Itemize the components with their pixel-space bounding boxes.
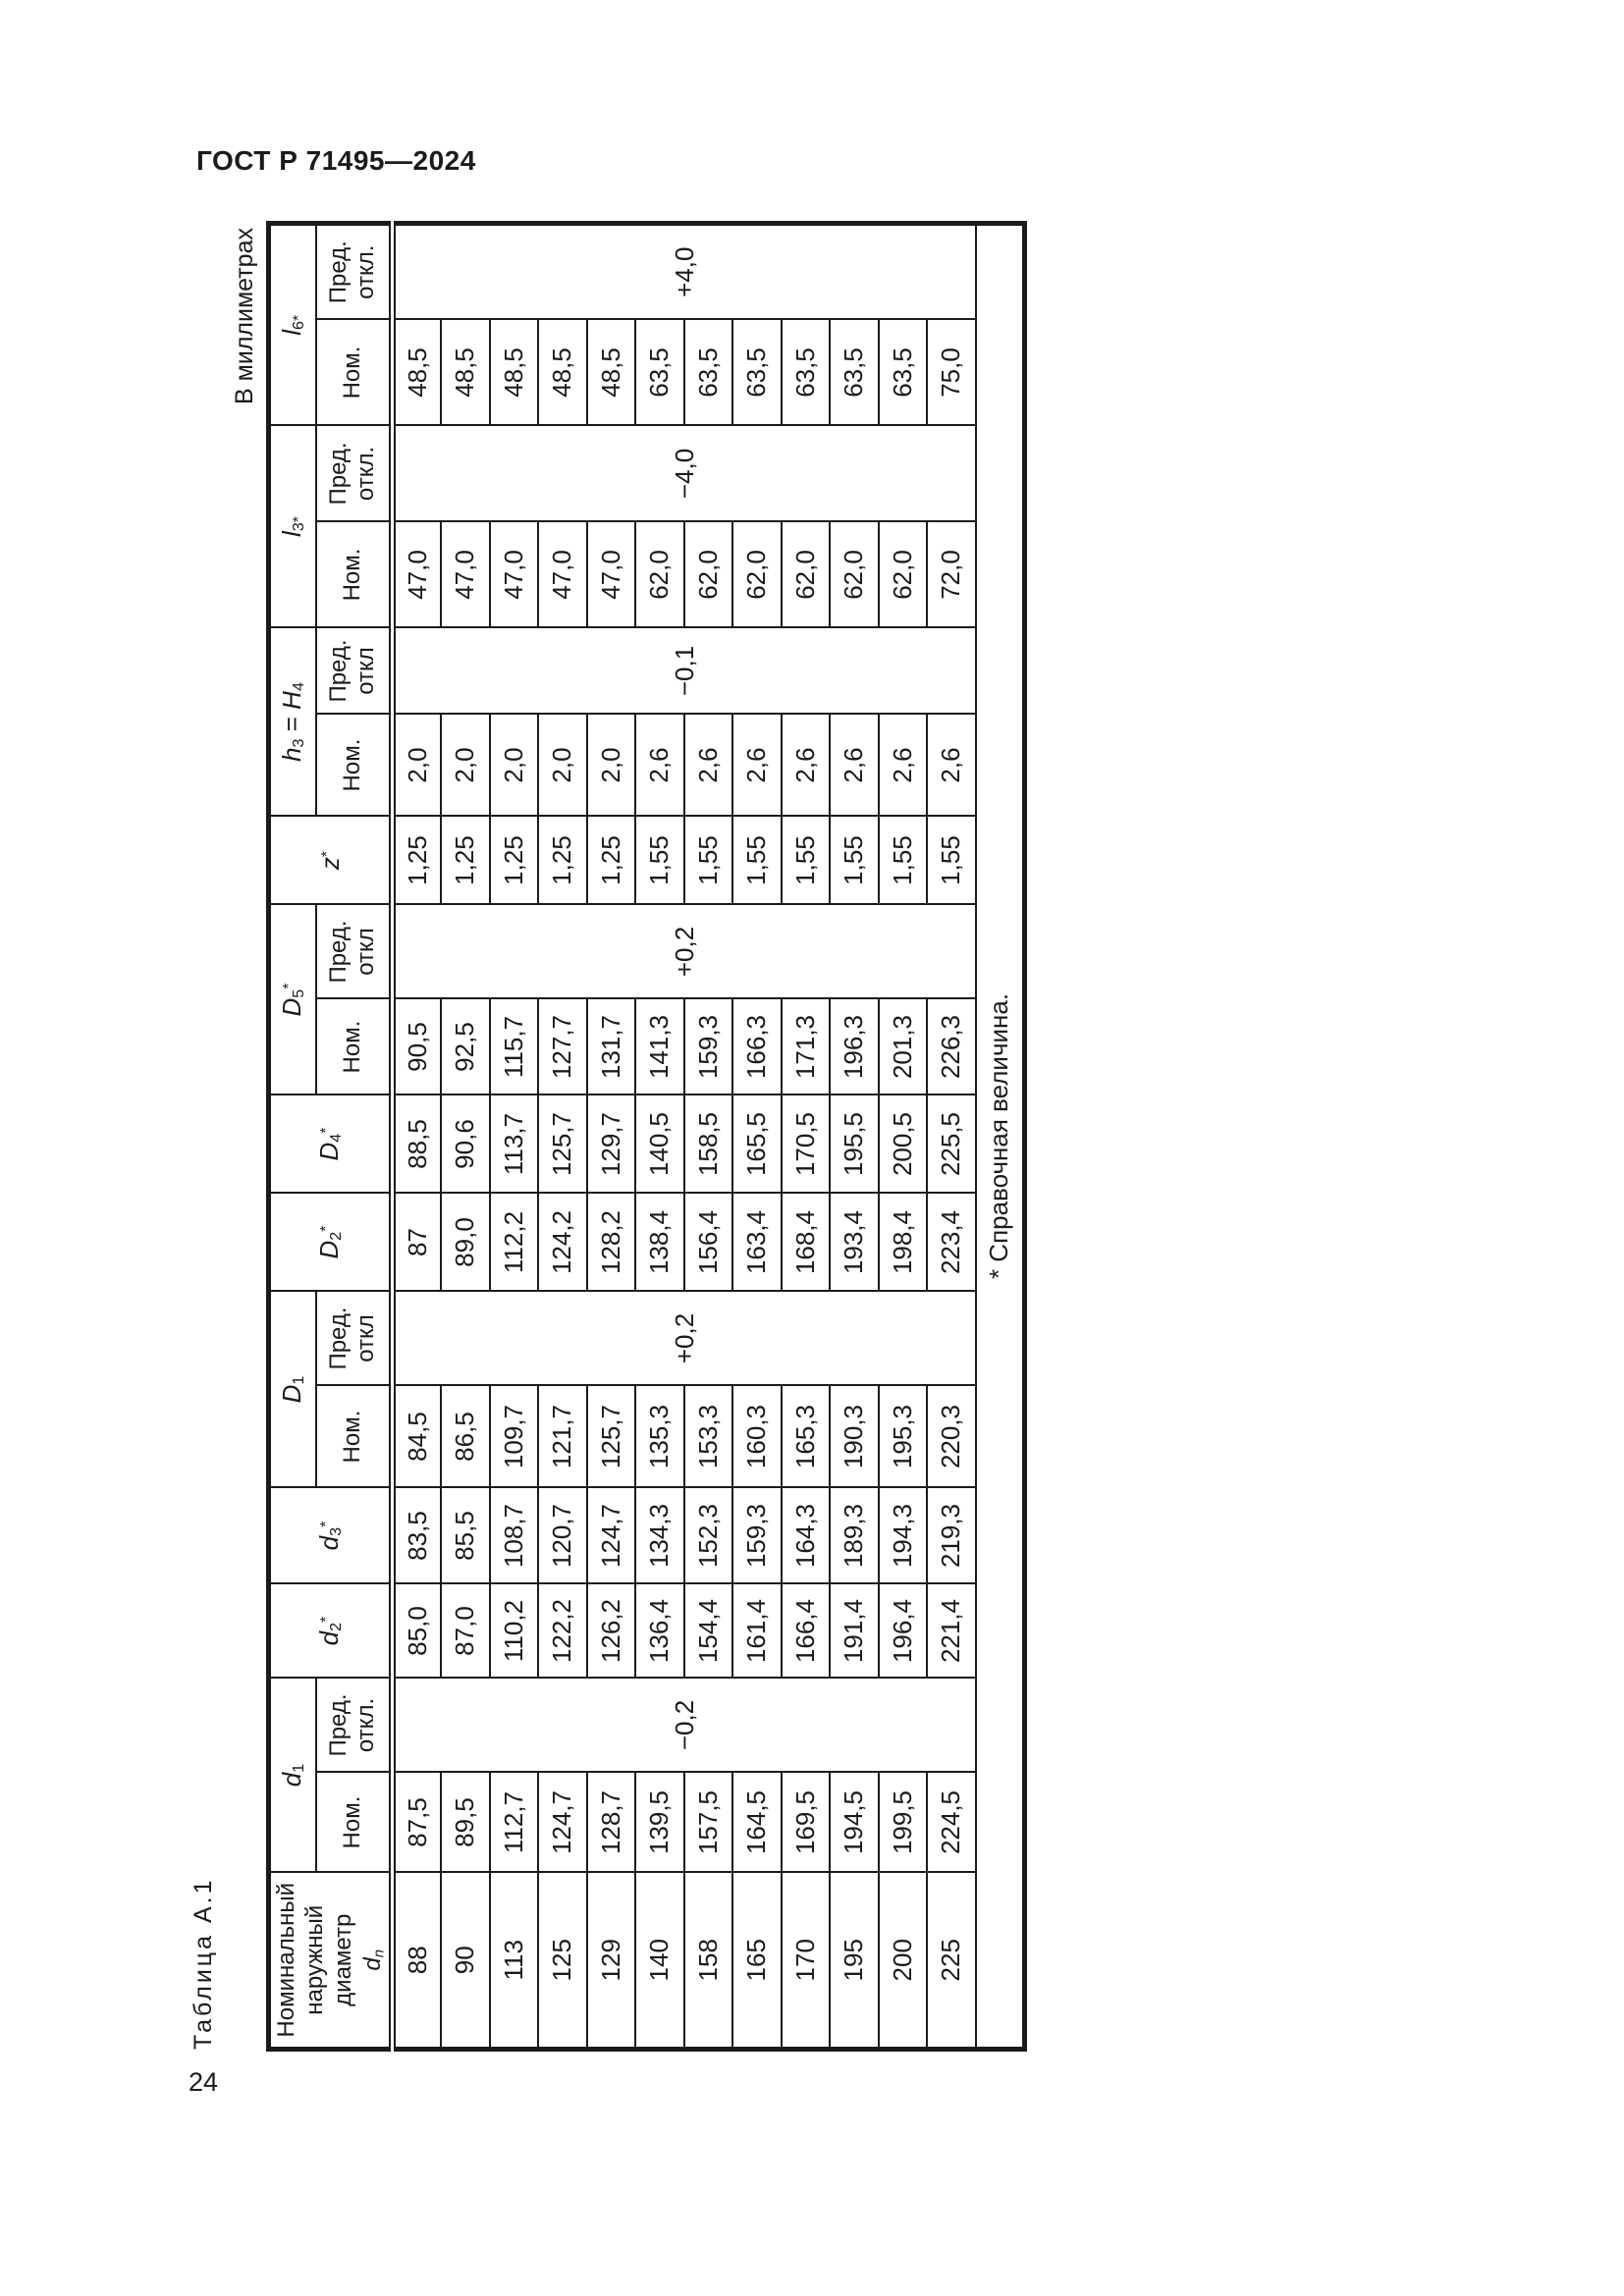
cell-dn: 225 (927, 1873, 976, 2050)
subheader-l3-pred: Пред. откл. (316, 425, 393, 521)
cell-d2: 126,2 (587, 1584, 636, 1679)
footnote-row: * Справочная величина. (976, 223, 1025, 2049)
cell-d2: 161,4 (732, 1584, 782, 1679)
table-body: 8887,5−0,285,083,584,5+0,28788,590,5+0,2… (393, 223, 976, 2049)
cell-d1-nom: 224,5 (927, 1773, 976, 1873)
dimensions-table: Номинальныйнаружныйдиаметрdnd1d2*d3*D1D2… (266, 221, 1027, 2052)
cell-l6-nom: 63,5 (684, 319, 733, 425)
subheader-D5-pred: Пред. откл (316, 905, 393, 999)
cell-D2: 89,0 (441, 1194, 490, 1292)
cell-l6-pred-merged: +4,0 (393, 223, 976, 319)
table-footer: * Справочная величина. (976, 223, 1025, 2049)
subheader-D1-pred: Пред. откл (316, 1292, 393, 1386)
cell-l3-pred-merged: −4,0 (393, 425, 976, 521)
cell-d1-nom: 128,7 (587, 1773, 636, 1873)
column-header-D4: D4* (269, 1095, 393, 1194)
cell-d1-nom: 169,5 (782, 1773, 831, 1873)
cell-dn: 158 (684, 1873, 733, 2050)
cell-dn: 129 (587, 1873, 636, 2050)
cell-h3-nom: 2,6 (830, 715, 879, 817)
cell-l6-nom: 75,0 (927, 319, 976, 425)
cell-l6-nom: 63,5 (782, 319, 831, 425)
cell-d3: 120,7 (538, 1488, 587, 1584)
cell-z: 1,55 (635, 817, 684, 905)
column-header-h3: h3 = H4 (269, 627, 316, 816)
cell-h3-nom: 2,0 (538, 715, 587, 817)
cell-l3-nom: 47,0 (441, 521, 490, 627)
cell-d3: 164,3 (782, 1488, 831, 1584)
page-number: 24 (189, 2067, 218, 2098)
cell-z: 1,55 (927, 817, 976, 905)
cell-l3-nom: 47,0 (538, 521, 587, 627)
cell-D2: 87 (393, 1194, 442, 1292)
cell-h3-nom: 2,6 (684, 715, 733, 817)
cell-z: 1,25 (587, 817, 636, 905)
cell-D1-nom: 84,5 (393, 1386, 442, 1488)
cell-D4: 125,7 (538, 1095, 587, 1194)
cell-D4: 170,5 (782, 1095, 831, 1194)
rotated-table-block: Таблица А.1 В миллиметрах Номинальныйнар… (189, 226, 1023, 2052)
cell-d1-nom: 194,5 (830, 1773, 879, 1873)
cell-z: 1,25 (538, 817, 587, 905)
cell-dn: 195 (830, 1873, 879, 2050)
cell-h3-nom: 2,6 (635, 715, 684, 817)
cell-l6-nom: 48,5 (587, 319, 636, 425)
cell-D5-pred-merged: +0,2 (393, 905, 976, 999)
cell-l3-nom: 47,0 (490, 521, 539, 627)
cell-D2: 168,4 (782, 1194, 831, 1292)
cell-h3-nom: 2,0 (587, 715, 636, 817)
table-header: Номинальныйнаружныйдиаметрdnd1d2*d3*D1D2… (269, 223, 393, 2049)
cell-h3-nom: 2,0 (441, 715, 490, 817)
cell-d1-nom: 89,5 (441, 1773, 490, 1873)
table-row-88: 8887,5−0,285,083,584,5+0,28788,590,5+0,2… (393, 223, 442, 2049)
cell-l6-nom: 63,5 (879, 319, 928, 425)
column-header-D5: D5* (269, 905, 316, 1095)
cell-D5-nom: 201,3 (879, 999, 928, 1095)
table-caption: Таблица А.1 (189, 226, 218, 2050)
table-footnote: * Справочная величина. (976, 223, 1025, 2049)
cell-l3-nom: 62,0 (732, 521, 782, 627)
cell-D5-nom: 127,7 (538, 999, 587, 1095)
cell-D4: 200,5 (879, 1095, 928, 1194)
cell-D2: 163,4 (732, 1194, 782, 1292)
cell-D4: 113,7 (490, 1095, 539, 1194)
cell-D5-nom: 226,3 (927, 999, 976, 1095)
cell-d2: 166,4 (782, 1584, 831, 1679)
cell-D2: 138,4 (635, 1194, 684, 1292)
cell-dn: 88 (393, 1873, 442, 2050)
column-header-D2: D2* (269, 1194, 393, 1292)
cell-z: 1,55 (879, 817, 928, 905)
cell-h3-pred-merged: −0,1 (393, 627, 976, 714)
cell-d1-nom: 157,5 (684, 1773, 733, 1873)
column-header-dn: Номинальныйнаружныйдиаметрdn (269, 1873, 393, 2050)
cell-d3: 189,3 (830, 1488, 879, 1584)
cell-D1-nom: 109,7 (490, 1386, 539, 1488)
document-page: ГОСТ Р 71495—2024 Таблица А.1 В миллимет… (0, 0, 1624, 2296)
cell-D2: 128,2 (587, 1194, 636, 1292)
subheader-l6-pred: Пред. откл. (316, 223, 393, 319)
cell-D4: 195,5 (830, 1095, 879, 1194)
cell-dn: 113 (490, 1873, 539, 2050)
cell-d3: 85,5 (441, 1488, 490, 1584)
cell-d2: 87,0 (441, 1584, 490, 1679)
cell-D1-nom: 121,7 (538, 1386, 587, 1488)
cell-D5-nom: 196,3 (830, 999, 879, 1095)
cell-d3: 194,3 (879, 1488, 928, 1584)
cell-l3-nom: 62,0 (830, 521, 879, 627)
cell-D5-nom: 166,3 (732, 999, 782, 1095)
cell-D1-nom: 135,3 (635, 1386, 684, 1488)
cell-D5-nom: 131,7 (587, 999, 636, 1095)
cell-d1-nom: 112,7 (490, 1773, 539, 1873)
column-header-l6: l6* (269, 223, 316, 425)
cell-D2: 198,4 (879, 1194, 928, 1292)
cell-D2: 156,4 (684, 1194, 733, 1292)
cell-D5-nom: 141,3 (635, 999, 684, 1095)
subheader-D1-nom: Ном. (316, 1386, 393, 1488)
cell-D2: 124,2 (538, 1194, 587, 1292)
cell-d3: 159,3 (732, 1488, 782, 1584)
column-header-D1: D1 (269, 1292, 316, 1488)
cell-h3-nom: 2,0 (393, 715, 442, 817)
cell-D5-nom: 92,5 (441, 999, 490, 1095)
cell-h3-nom: 2,0 (490, 715, 539, 817)
cell-l6-nom: 63,5 (830, 319, 879, 425)
cell-dn: 165 (732, 1873, 782, 2050)
cell-l3-nom: 72,0 (927, 521, 976, 627)
cell-z: 1,25 (393, 817, 442, 905)
subheader-D5-nom: Ном. (316, 999, 393, 1095)
cell-D4: 88,5 (393, 1095, 442, 1194)
cell-D5-nom: 171,3 (782, 999, 831, 1095)
cell-h3-nom: 2,6 (879, 715, 928, 817)
cell-h3-nom: 2,6 (927, 715, 976, 817)
cell-l6-nom: 48,5 (393, 319, 442, 425)
cell-z: 1,55 (684, 817, 733, 905)
cell-l6-nom: 63,5 (732, 319, 782, 425)
cell-d2: 110,2 (490, 1584, 539, 1679)
cell-d2: 85,0 (393, 1584, 442, 1679)
cell-z: 1,55 (732, 817, 782, 905)
cell-D1-nom: 195,3 (879, 1386, 928, 1488)
cell-d1-nom: 164,5 (732, 1773, 782, 1873)
cell-z: 1,25 (441, 817, 490, 905)
cell-d1-nom: 199,5 (879, 1773, 928, 1873)
cell-D4: 158,5 (684, 1095, 733, 1194)
cell-dn: 140 (635, 1873, 684, 2050)
header-row-main: Номинальныйнаружныйдиаметрdnd1d2*d3*D1D2… (269, 223, 316, 2049)
column-header-z: z* (269, 817, 393, 905)
cell-d2: 221,4 (927, 1584, 976, 1679)
cell-D2: 193,4 (830, 1194, 879, 1292)
cell-D4: 225,5 (927, 1095, 976, 1194)
subheader-d1-nom: Ном. (316, 1773, 393, 1873)
cell-h3-nom: 2,6 (732, 715, 782, 817)
subheader-l6-nom: Ном. (316, 319, 393, 425)
cell-d1-nom: 139,5 (635, 1773, 684, 1873)
cell-dn: 200 (879, 1873, 928, 2050)
cell-D1-nom: 190,3 (830, 1386, 879, 1488)
cell-l3-nom: 62,0 (782, 521, 831, 627)
column-header-d2: d2* (269, 1584, 393, 1679)
cell-D4: 129,7 (587, 1095, 636, 1194)
cell-h3-nom: 2,6 (782, 715, 831, 817)
cell-D5-nom: 115,7 (490, 999, 539, 1095)
cell-d3: 219,3 (927, 1488, 976, 1584)
cell-d3: 124,7 (587, 1488, 636, 1584)
cell-z: 1,55 (782, 817, 831, 905)
cell-D4: 165,5 (732, 1095, 782, 1194)
cell-z: 1,25 (490, 817, 539, 905)
cell-D2: 112,2 (490, 1194, 539, 1292)
cell-l3-nom: 62,0 (879, 521, 928, 627)
cell-d3: 83,5 (393, 1488, 442, 1584)
cell-d2: 122,2 (538, 1584, 587, 1679)
cell-l3-nom: 47,0 (587, 521, 636, 627)
cell-d2: 196,4 (879, 1584, 928, 1679)
cell-l3-nom: 47,0 (393, 521, 442, 627)
cell-dn: 170 (782, 1873, 831, 2050)
cell-D1-nom: 153,3 (684, 1386, 733, 1488)
cell-l6-nom: 48,5 (441, 319, 490, 425)
cell-D5-nom: 159,3 (684, 999, 733, 1095)
cell-D1-nom: 86,5 (441, 1386, 490, 1488)
cell-D1-pred-merged: +0,2 (393, 1292, 976, 1386)
document-header: ГОСТ Р 71495—2024 (196, 145, 476, 177)
cell-d1-nom: 87,5 (393, 1773, 442, 1873)
cell-d3: 152,3 (684, 1488, 733, 1584)
cell-D5-nom: 90,5 (393, 999, 442, 1095)
subheader-d1-pred: Пред. откл. (316, 1679, 393, 1773)
units-note: В миллиметрах (231, 228, 259, 2052)
cell-l3-nom: 62,0 (684, 521, 733, 627)
cell-D1-nom: 160,3 (732, 1386, 782, 1488)
cell-d3: 108,7 (490, 1488, 539, 1584)
cell-d1-pred-merged: −0,2 (393, 1679, 976, 1773)
cell-l3-nom: 62,0 (635, 521, 684, 627)
cell-d1-nom: 124,7 (538, 1773, 587, 1873)
cell-D4: 140,5 (635, 1095, 684, 1194)
cell-D1-nom: 125,7 (587, 1386, 636, 1488)
cell-z: 1,55 (830, 817, 879, 905)
cell-dn: 125 (538, 1873, 587, 2050)
subheader-h3-nom: Ном. (316, 715, 393, 817)
column-header-l3: l3* (269, 425, 316, 627)
subheader-l3-nom: Ном. (316, 521, 393, 627)
cell-l6-nom: 63,5 (635, 319, 684, 425)
cell-D4: 90,6 (441, 1095, 490, 1194)
cell-D2: 223,4 (927, 1194, 976, 1292)
cell-d3: 134,3 (635, 1488, 684, 1584)
cell-d2: 191,4 (830, 1584, 879, 1679)
cell-l6-nom: 48,5 (490, 319, 539, 425)
cell-D1-nom: 165,3 (782, 1386, 831, 1488)
cell-d2: 136,4 (635, 1584, 684, 1679)
subheader-h3-pred: Пред. откл (316, 627, 393, 714)
column-header-d1: d1 (269, 1679, 316, 1873)
cell-l6-nom: 48,5 (538, 319, 587, 425)
cell-dn: 90 (441, 1873, 490, 2050)
cell-D1-nom: 220,3 (927, 1386, 976, 1488)
column-header-d3: d3* (269, 1488, 393, 1584)
cell-d2: 154,4 (684, 1584, 733, 1679)
